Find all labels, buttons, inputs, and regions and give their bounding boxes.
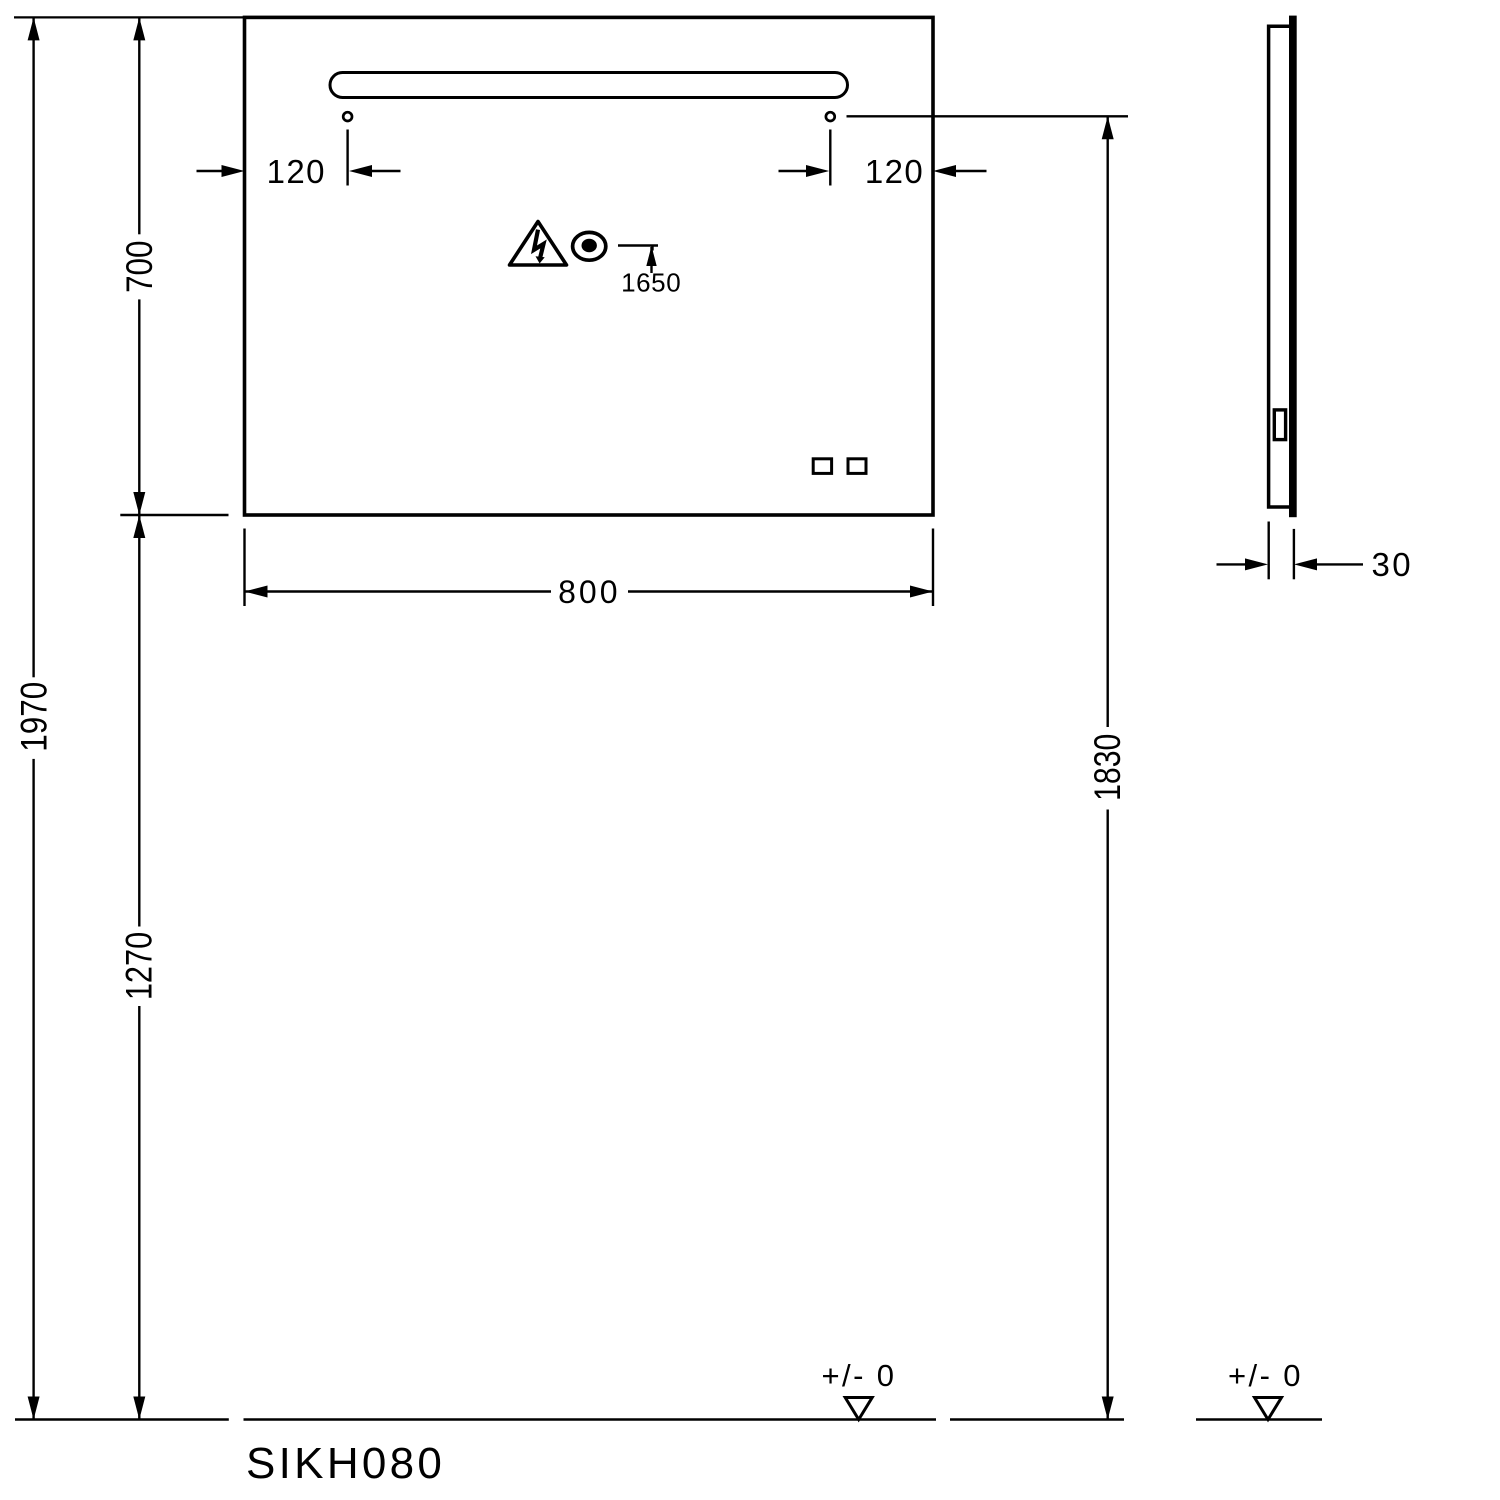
svg-text:800: 800 bbox=[558, 574, 620, 610]
svg-text:1970: 1970 bbox=[14, 682, 55, 752]
svg-text:1270: 1270 bbox=[119, 932, 160, 1000]
svg-text:1830: 1830 bbox=[1088, 734, 1128, 801]
svg-text:SIKH080: SIKH080 bbox=[246, 1439, 445, 1488]
svg-text:120: 120 bbox=[267, 153, 326, 190]
svg-text:700: 700 bbox=[120, 240, 161, 292]
svg-text:30: 30 bbox=[1372, 546, 1414, 583]
svg-text:120: 120 bbox=[865, 153, 924, 190]
svg-text:1650: 1650 bbox=[621, 268, 681, 298]
svg-text:+/- 0: +/- 0 bbox=[1228, 1358, 1303, 1393]
svg-text:+/- 0: +/- 0 bbox=[822, 1358, 897, 1393]
